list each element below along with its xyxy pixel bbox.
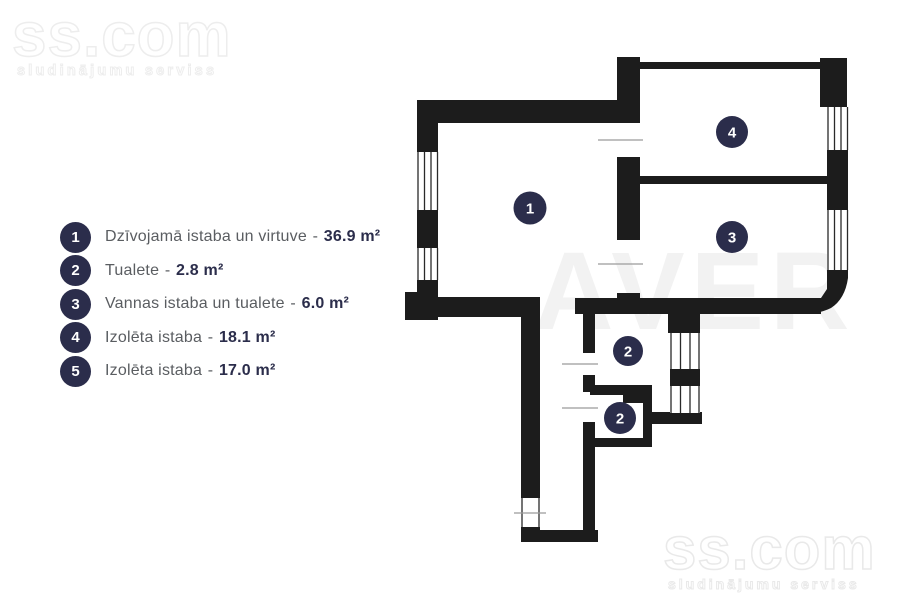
legend-badge-5: 5 xyxy=(60,356,91,387)
legend-item-2: 2 Tualete - 2.8 m² xyxy=(60,256,380,286)
room-marker-3: 3 xyxy=(716,221,748,253)
room4-window xyxy=(827,107,848,150)
legend-badge-4: 4 xyxy=(60,322,91,353)
legend-label-4: Izolēta istaba - 18.1 m² xyxy=(105,329,275,347)
corridor-opening xyxy=(514,498,546,527)
middle-wall xyxy=(617,57,640,314)
room1-window-top xyxy=(417,152,438,210)
legend-item-1: 1 Dzīvojamā istaba un virtuve - 36.9 m² xyxy=(60,222,380,252)
room-marker-4: 4 xyxy=(716,116,748,148)
toilet-window-top xyxy=(670,333,700,369)
toilet-window-bottom xyxy=(670,386,700,413)
toilet-window-mid-block xyxy=(670,369,700,386)
room-marker-2-lower: 2 xyxy=(604,402,636,434)
legend-badge-2: 2 xyxy=(60,255,91,286)
rounded-corner-wall xyxy=(816,268,848,313)
legend-item-5: 5 Izolēta istaba - 17.0 m² xyxy=(60,356,380,386)
legend-item-3: 3 Vannas istaba un tualete - 6.0 m² xyxy=(60,289,380,319)
svg-text:2: 2 xyxy=(624,344,632,361)
legend-badge-1: 1 xyxy=(60,222,91,253)
room3-window xyxy=(827,210,848,270)
legend-label-5: Izolēta istaba - 17.0 m² xyxy=(105,362,275,380)
room-marker-2-upper: 2 xyxy=(613,336,643,366)
legend-label-2: Tualete - 2.8 m² xyxy=(105,262,223,280)
svg-text:4: 4 xyxy=(728,125,737,142)
svg-text:2: 2 xyxy=(616,411,624,428)
legend-label-3: Vannas istaba un tualete - 6.0 m² xyxy=(105,295,349,313)
svg-text:1: 1 xyxy=(526,201,534,218)
legend-item-4: 4 Izolēta istaba - 18.1 m² xyxy=(60,323,380,353)
room1-window-bottom xyxy=(417,248,438,280)
svg-text:3: 3 xyxy=(728,230,736,247)
legend-badge-3: 3 xyxy=(60,289,91,320)
room-legend: 1 Dzīvojamā istaba un virtuve - 36.9 m² … xyxy=(60,222,380,390)
legend-label-1: Dzīvojamā istaba un virtuve - 36.9 m² xyxy=(105,228,380,246)
room-marker-1: 1 xyxy=(514,192,547,225)
